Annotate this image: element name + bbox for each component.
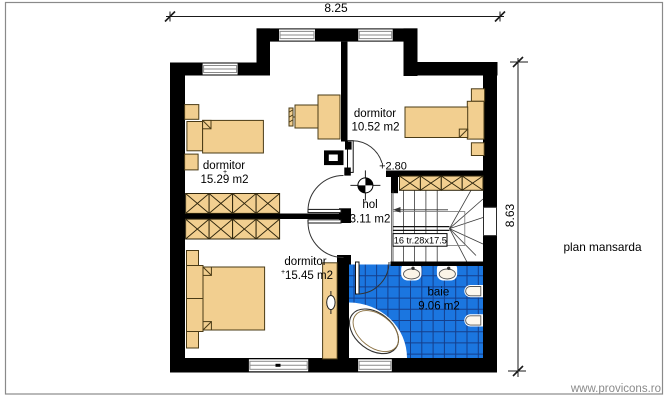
svg-text:www.provicons.ro: www.provicons.ro [570,383,661,395]
svg-text:dormitor: dormitor [284,256,326,268]
svg-text:10.52 m2: 10.52 m2 [352,122,400,134]
svg-text:dormitor: dormitor [354,108,396,120]
svg-text:baie: baie [428,287,450,299]
svg-text:+: + [281,269,285,276]
svg-text:16 tr.28x17.5: 16 tr.28x17.5 [394,235,447,245]
svg-text:hol: hol [362,199,377,211]
svg-text:9.06 m2: 9.06 m2 [418,301,460,313]
svg-text:15.45 m2: 15.45 m2 [285,270,333,282]
svg-text:+: + [223,169,227,176]
svg-text:8.63: 8.63 [503,203,517,227]
svg-text:+2.80: +2.80 [379,161,407,173]
svg-text:plan mansarda: plan mansarda [563,240,641,254]
svg-text:8.25: 8.25 [324,1,348,15]
svg-text:3.11 m2: 3.11 m2 [350,214,391,226]
